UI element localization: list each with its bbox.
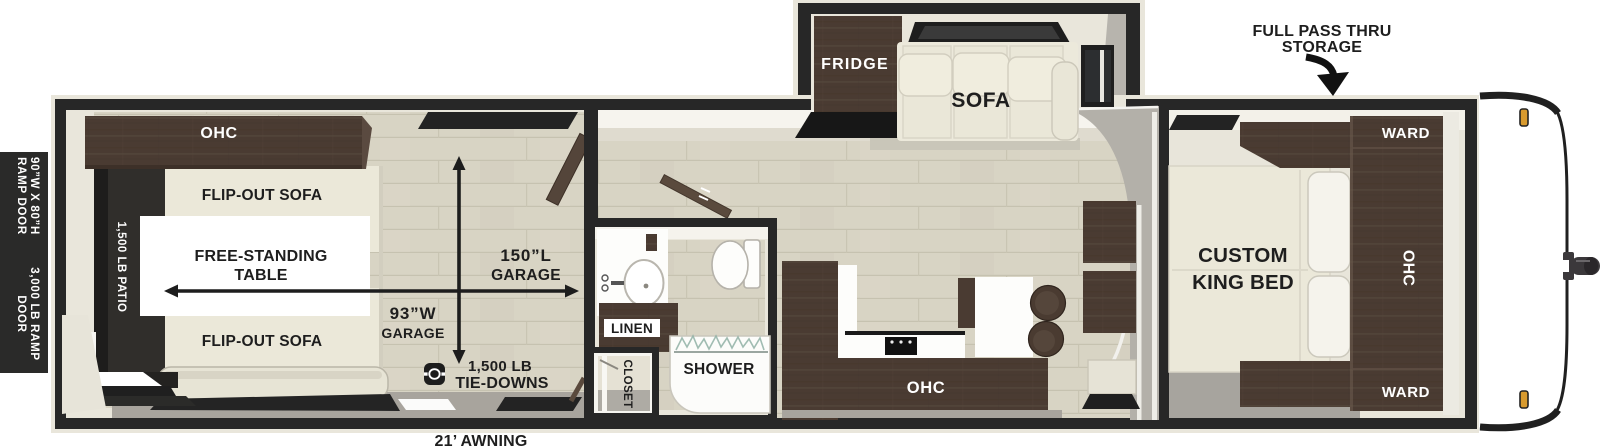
svg-text:FLIP-OUT SOFA: FLIP-OUT SOFA [202, 333, 323, 350]
svg-text:OHC: OHC [907, 379, 945, 397]
svg-text:DOOR: DOOR [15, 295, 27, 332]
svg-text:LINEN: LINEN [611, 321, 653, 336]
svg-text:150”L: 150”L [500, 246, 551, 265]
svg-text:CUSTOM: CUSTOM [1198, 244, 1288, 267]
svg-text:1,500 LB PATIO: 1,500 LB PATIO [115, 222, 127, 313]
svg-text:RAMP DOOR: RAMP DOOR [15, 157, 27, 235]
svg-text:93”W: 93”W [390, 304, 437, 323]
svg-text:STORAGE: STORAGE [1282, 39, 1362, 56]
svg-text:FRIDGE: FRIDGE [821, 56, 889, 73]
svg-text:WARD: WARD [1382, 384, 1430, 401]
svg-text:FULL PASS THRU: FULL PASS THRU [1252, 23, 1391, 40]
svg-text:SOFA: SOFA [951, 89, 1010, 112]
svg-text:SHOWER: SHOWER [684, 361, 755, 378]
svg-text:WARD: WARD [1382, 125, 1430, 142]
svg-text:1,500 LB: 1,500 LB [468, 358, 532, 375]
svg-text:GARAGE: GARAGE [491, 267, 561, 284]
svg-text:FREE-STANDING: FREE-STANDING [195, 248, 328, 265]
svg-text:3,000 LB RAMP: 3,000 LB RAMP [28, 267, 40, 360]
svg-text:90”W X 80”H: 90”W X 80”H [28, 157, 40, 235]
svg-text:CLOSET: CLOSET [621, 359, 633, 408]
svg-text:GARAGE: GARAGE [381, 325, 444, 341]
svg-text:TABLE: TABLE [234, 267, 287, 284]
svg-text:OHC: OHC [200, 125, 237, 142]
svg-text:TIE-DOWNS: TIE-DOWNS [455, 375, 548, 392]
svg-text:KING BED: KING BED [1192, 271, 1294, 294]
svg-text:21’ AWNING: 21’ AWNING [435, 433, 528, 447]
svg-text:FLIP-OUT SOFA: FLIP-OUT SOFA [202, 187, 323, 204]
svg-text:OHC: OHC [1400, 250, 1417, 286]
